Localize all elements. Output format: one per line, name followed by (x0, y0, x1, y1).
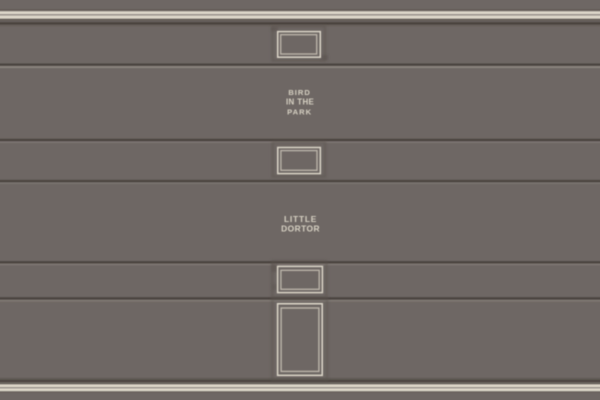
svg-text:DORTOR: DORTOR (281, 223, 320, 233)
svg-text:IN THE: IN THE (286, 98, 314, 107)
svg-text:PARK: PARK (287, 107, 312, 116)
svg-text:BIRD: BIRD (288, 88, 311, 97)
